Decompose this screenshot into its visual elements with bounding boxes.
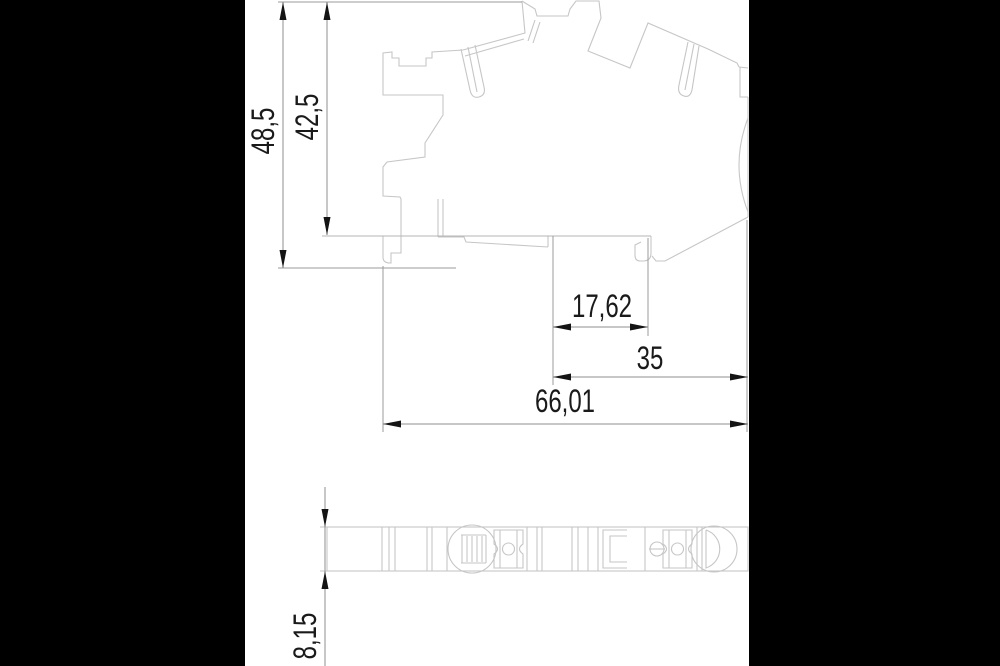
dimension-label-rail-width: 35 xyxy=(637,340,664,376)
technical-drawing-canvas: 48,5 42,5 17,62 35 66,01 xyxy=(0,0,1000,666)
dimension-label-inner-width: 17,62 xyxy=(572,288,632,324)
letterbox-left xyxy=(0,0,245,666)
letterbox-right xyxy=(749,0,1000,666)
dimension-label-upper-height: 42,5 xyxy=(289,94,325,141)
dimension-label-overall-height: 48,5 xyxy=(245,108,281,155)
dimension-label-overall-width: 66,01 xyxy=(535,383,595,419)
dimension-label-profile-depth: 8,15 xyxy=(287,613,323,660)
cad-drawing: 48,5 42,5 17,62 35 66,01 xyxy=(0,0,1000,666)
